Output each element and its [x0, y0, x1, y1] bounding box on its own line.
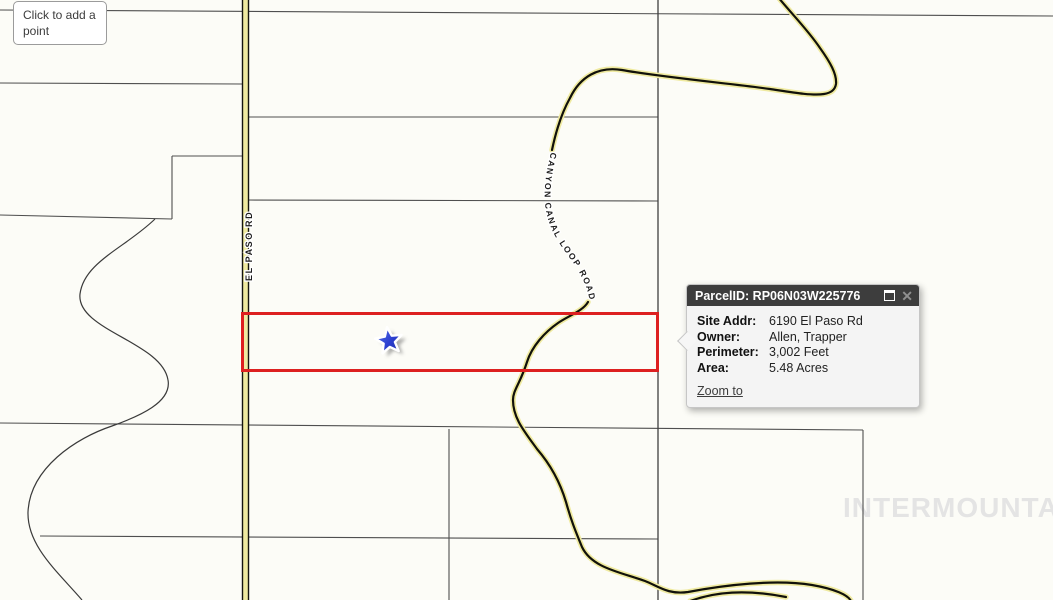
info-value: 3,002 Feet: [769, 345, 829, 361]
info-row-perimeter: Perimeter: 3,002 Feet: [697, 345, 909, 361]
info-value: 6190 El Paso Rd: [769, 314, 863, 330]
add-point-tooltip: Click to add a point: [13, 1, 107, 45]
info-row-site-addr: Site Addr: 6190 El Paso Rd: [697, 314, 909, 330]
close-icon[interactable]: ✕: [901, 289, 913, 303]
selected-parcel-outline[interactable]: [243, 314, 658, 371]
info-label: Perimeter:: [697, 345, 769, 361]
info-label: Area:: [697, 361, 769, 377]
info-row-area: Area: 5.48 Acres: [697, 361, 909, 377]
info-label: Site Addr:: [697, 314, 769, 330]
canal-line: [28, 219, 168, 600]
el-paso-road: [243, 0, 249, 600]
popup-title-bar[interactable]: ParcelID: RP06N03W225776 ✕: [687, 285, 919, 306]
info-value: 5.48 Acres: [769, 361, 828, 377]
info-label: Owner:: [697, 330, 769, 346]
road-label-el-paso: EL PASO RD: [244, 211, 254, 281]
info-value: Allen, Trapper: [769, 330, 847, 346]
popup-title: ParcelID: RP06N03W225776: [695, 289, 860, 303]
info-row-owner: Owner: Allen, Trapper: [697, 330, 909, 346]
parcel-info-popup: ParcelID: RP06N03W225776 ✕ Site Addr: 61…: [686, 284, 920, 408]
star-marker[interactable]: [374, 325, 408, 358]
popup-body: Site Addr: 6190 El Paso Rd Owner: Allen,…: [687, 306, 919, 407]
maximize-icon[interactable]: [884, 290, 895, 301]
road-label-canyon: CANYON CANAL LOOP ROAD: [543, 152, 598, 302]
zoom-to-link[interactable]: Zoom to: [697, 384, 743, 398]
